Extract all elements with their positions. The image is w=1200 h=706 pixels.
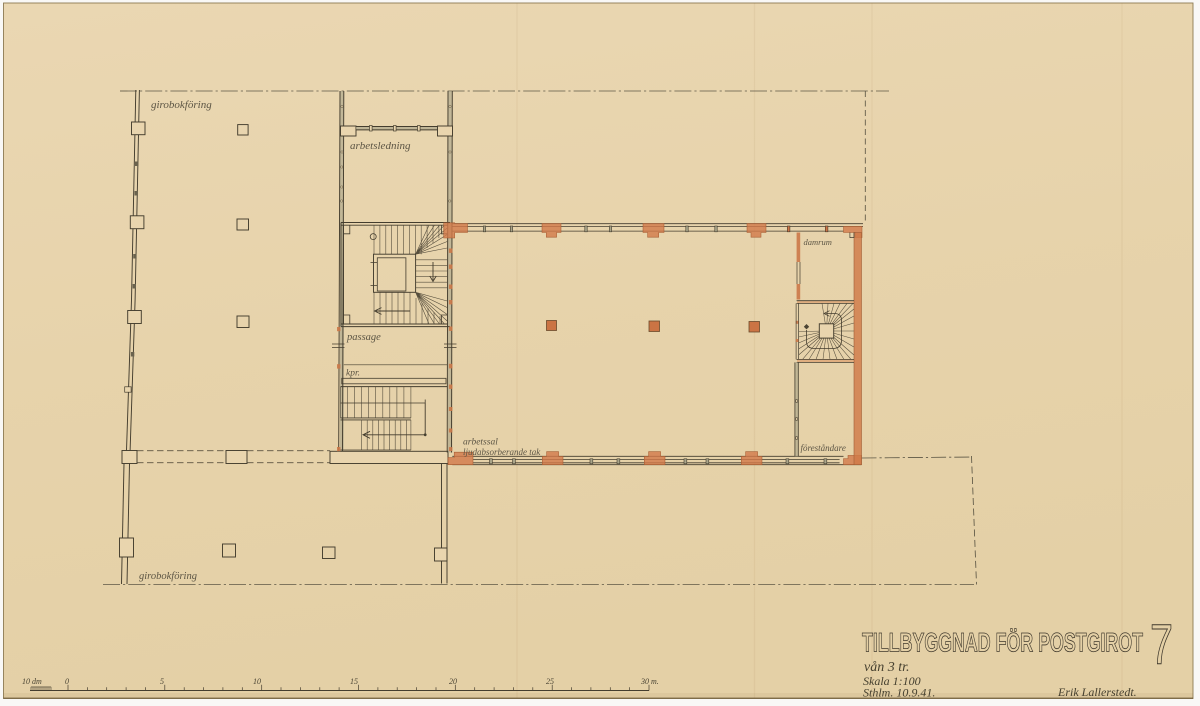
svg-text:Erik Lallerstedt.: Erik Lallerstedt.: [1057, 685, 1137, 699]
svg-text:25: 25: [546, 677, 554, 686]
svg-text:ljudabsorberande tak: ljudabsorberande tak: [463, 447, 541, 457]
svg-text:arbetsledning: arbetsledning: [350, 140, 411, 152]
svg-text:kpr.: kpr.: [346, 369, 360, 379]
svg-text:0: 0: [65, 677, 69, 686]
svg-text:girobokföring: girobokföring: [151, 99, 212, 111]
svg-text:7: 7: [1150, 613, 1173, 677]
svg-text:damrum: damrum: [804, 237, 832, 247]
svg-text:passage: passage: [346, 332, 381, 343]
svg-text:vån 3 tr.: vån 3 tr.: [864, 660, 910, 675]
svg-text:10: 10: [253, 677, 261, 686]
svg-text:5: 5: [160, 677, 164, 686]
svg-text:20: 20: [449, 677, 457, 686]
svg-text:30 m.: 30 m.: [640, 677, 659, 686]
svg-text:10 dm: 10 dm: [22, 677, 42, 686]
svg-text:TILLBYGGNAD FÖR POSTGIROT: TILLBYGGNAD FÖR POSTGIROT: [862, 628, 1143, 658]
svg-text:Sthlm. 10.9.41.: Sthlm. 10.9.41.: [863, 686, 935, 700]
svg-text:15: 15: [350, 677, 358, 686]
svg-text:föreståndare: föreståndare: [801, 443, 846, 453]
svg-text:arbetssal: arbetssal: [463, 438, 498, 448]
svg-text:girobokföring: girobokföring: [139, 571, 197, 582]
